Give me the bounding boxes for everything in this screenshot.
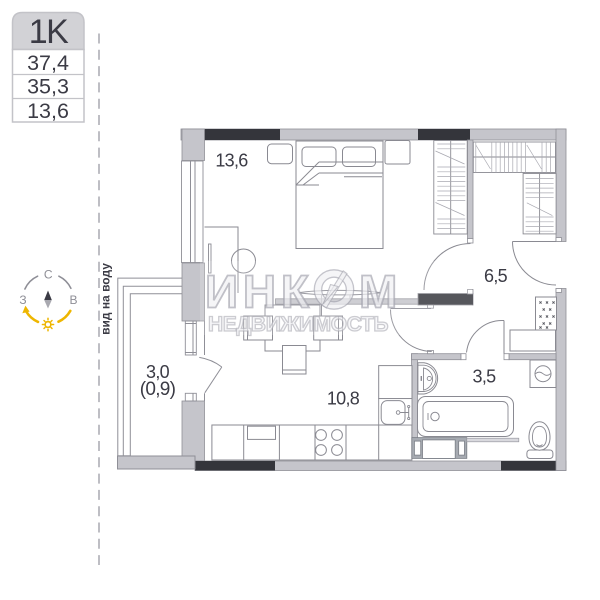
svg-text:З: З xyxy=(19,293,26,307)
svg-text:вид на воду: вид на воду xyxy=(99,263,113,335)
svg-text:37,4: 37,4 xyxy=(27,51,69,75)
svg-text:13,6: 13,6 xyxy=(215,151,248,171)
svg-text:(0,9): (0,9) xyxy=(140,379,176,400)
svg-text:3,5: 3,5 xyxy=(473,367,497,387)
svg-text:С: С xyxy=(44,268,53,282)
svg-text:6,5: 6,5 xyxy=(484,266,508,286)
svg-text:ИНК: ИНК xyxy=(205,266,314,318)
svg-text:НЕДВИЖИМОСТЬ: НЕДВИЖИМОСТЬ xyxy=(208,313,388,336)
svg-text:В: В xyxy=(69,293,77,307)
svg-text:13,6: 13,6 xyxy=(27,99,69,123)
svg-text:1K: 1K xyxy=(29,13,69,51)
svg-text:35,3: 35,3 xyxy=(27,75,69,99)
svg-text:10,8: 10,8 xyxy=(327,389,360,409)
svg-text:М: М xyxy=(359,266,397,318)
